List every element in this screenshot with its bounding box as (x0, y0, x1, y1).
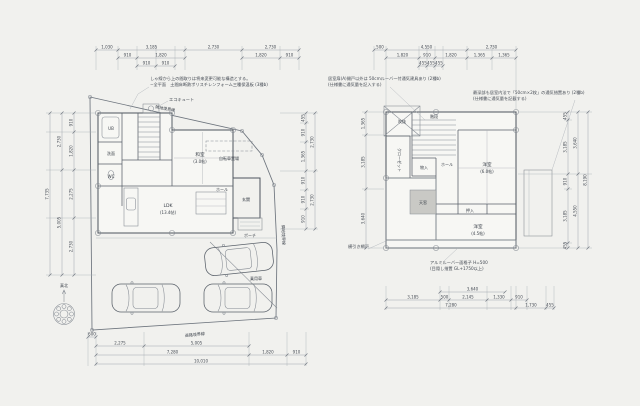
room-label-genkan: 玄関 (242, 196, 250, 202)
room-label-wc: WC (108, 174, 115, 179)
dim-value: 910 (423, 53, 431, 58)
dim-value: 1,365 (301, 150, 306, 162)
room-size-room1: (6.0帖) (480, 168, 494, 174)
dim-value: 455 (546, 303, 554, 308)
dim-value: 1,820 (262, 350, 274, 355)
note-bottom-1: アルミルーバー面格子 H=500 (430, 259, 488, 266)
note-tr-1: 最深部も居室内法で「50cm×2枚」の通気措置あり (2種b) (473, 89, 585, 96)
dim-value: 910 (162, 61, 170, 66)
dim-value: 2,145 (462, 295, 474, 300)
dim-value: 8,190 (583, 174, 588, 186)
dim-value: 910 (301, 176, 306, 184)
room-size-washitsu: (3.0帖) (193, 158, 207, 164)
dim-value: 1,820 (155, 53, 167, 58)
room-label-void: 吹抜 (398, 118, 406, 124)
dim-value: 5,005 (57, 216, 62, 228)
dim-value: 7,735 (45, 188, 50, 200)
car-left (112, 282, 180, 315)
boundary-label-top: 隣地境界線 (155, 103, 176, 112)
dim-value: 910 (301, 195, 306, 203)
dim-value: 455 (301, 114, 306, 122)
room-label-hall: ホール (216, 187, 228, 192)
compass-label: 真北 (60, 282, 68, 288)
dim-value: 5,005 (191, 341, 203, 346)
dim-value: 7,280 (167, 350, 179, 355)
car-right (204, 282, 272, 315)
boundary-label-right: 隣地境界線 (281, 225, 288, 245)
dim-value: 1,730 (525, 303, 537, 308)
room-label-room1: 洋室 (482, 161, 492, 168)
note-tr-2: (仕様書に通気量を記載する) (473, 95, 527, 102)
room-size-room2: (4.5帖) (471, 230, 485, 236)
room-label-porch: ポーチ (244, 232, 256, 238)
floor-plan-sheet: 隣地境界線 隣地境界線 道路境界線 UB 洗面 WC (0, 0, 640, 406)
dim-value: 2,275 (114, 341, 126, 346)
dim-value: 3,185 (407, 295, 419, 300)
left-plan: 隣地境界線 隣地境界線 道路境界線 UB 洗面 WC (45, 45, 318, 366)
dim-value: 910 (301, 128, 306, 136)
dim-value: 7,280 (445, 303, 457, 308)
room-label-ub: UB (108, 126, 114, 131)
room-label-washitsu: 和室 (195, 151, 205, 158)
room-label-closet: クローゼット (397, 148, 403, 172)
drawing-canvas: 隣地境界線 隣地境界線 道路境界線 UB 洗面 WC (0, 0, 640, 406)
room-label-ldk: LDK (163, 203, 173, 209)
dim-value: 910 (124, 53, 132, 58)
dim-value: 1,820 (445, 53, 457, 58)
room-label-senmen: 洗面 (107, 150, 115, 156)
dim-value: 500 (376, 45, 384, 50)
dim-value: 1,330 (493, 295, 505, 300)
dim-value: 910 (143, 61, 151, 66)
dim-value: 910 (286, 53, 294, 58)
dim-value: 1,365 (498, 53, 510, 58)
compass: 真北 (54, 282, 75, 325)
label-ecocute: エコキュート (169, 97, 194, 102)
dim-value: 600 (88, 332, 96, 337)
dim-value: 2,730 (265, 45, 277, 50)
dim-value: 910 (301, 215, 306, 223)
room-label-skylight: 天窓 (419, 199, 427, 205)
note-tl-1: 居室扉(A)開戸以外は 50cmルーバー付通気建具あり (2種b) (328, 75, 441, 82)
boundary-label-bottom: 道路境界線 (185, 330, 206, 338)
label-car: 乗用車 (250, 275, 262, 281)
dim-value: 2,730 (310, 136, 315, 148)
dim-value: 1,365 (474, 53, 486, 58)
dim-value: 455 (563, 112, 568, 120)
dim-value: 2,730 (208, 45, 220, 50)
dim-value: 2,730 (486, 45, 498, 50)
note-tl-2: (仕様書に通気量を記入する) (328, 81, 382, 88)
dim-value: 2,730 (57, 135, 62, 147)
room-label-oshiire: 押入 (466, 207, 474, 213)
dim-value: 4,550 (573, 205, 578, 217)
dim-value: 2,730 (310, 194, 315, 206)
label-bicycle: 自転車置場 (219, 155, 239, 161)
note-line-1: しゃ線から上の間取りは将来変更可能な構造とする。 (150, 75, 250, 82)
dim-value: 10,010 (194, 359, 208, 364)
room-label-room2: 洋室 (473, 223, 483, 230)
note-line-2: −全平面 土間床断熱ポリスチレンフォーム三種保温板 (3種b) (150, 81, 268, 88)
dim-value: 3,185 (146, 45, 158, 50)
dim-value: 455 (563, 241, 568, 249)
room-label-stairs: 階段 (430, 113, 438, 119)
dim-value: 3,185 (361, 156, 366, 168)
dim-value: 910 (293, 350, 301, 355)
dim-value: 910 (563, 177, 568, 185)
note-bottom-2: (目隠し措置 GL+1750以上) (430, 265, 484, 272)
dim-value: 1,820 (69, 145, 74, 157)
dim-value: 3,185 (563, 210, 568, 222)
dim-value: 1,820 (255, 53, 267, 58)
dim-value: 1,820 (397, 53, 409, 58)
dim-value: 455 (427, 61, 435, 66)
dim-value: 455 (419, 61, 427, 66)
dim-value: 3,640 (361, 212, 366, 224)
dim-value: 455 (435, 61, 443, 66)
room-label-hall: ホール (441, 162, 453, 167)
parking-area: 乗用車 (112, 239, 277, 314)
room-size-ldk: (13.4帖) (160, 209, 176, 215)
dim-value: 910 (515, 295, 523, 300)
house-1f (95, 101, 277, 238)
dim-value: 1,030 (101, 45, 113, 50)
dim-value: 910 (69, 118, 74, 126)
right-plan: 吹抜 クローゼット 階段 ホール 物入 洋室 (6.0帖) 押入 洋室 (4.5… (328, 45, 592, 310)
dim-value: 2,730 (69, 240, 74, 252)
room-label-mono: 物入 (420, 164, 428, 170)
car-top (203, 239, 274, 279)
dim-value: 3,185 (563, 141, 568, 153)
dim-value: 3,640 (467, 287, 479, 292)
dim-value: 4,550 (421, 45, 433, 50)
dim-value: 2,275 (69, 188, 74, 200)
dim-value: 3,640 (573, 137, 578, 149)
dim-value: 500 (441, 295, 449, 300)
dim-value: 1,365 (361, 117, 366, 129)
